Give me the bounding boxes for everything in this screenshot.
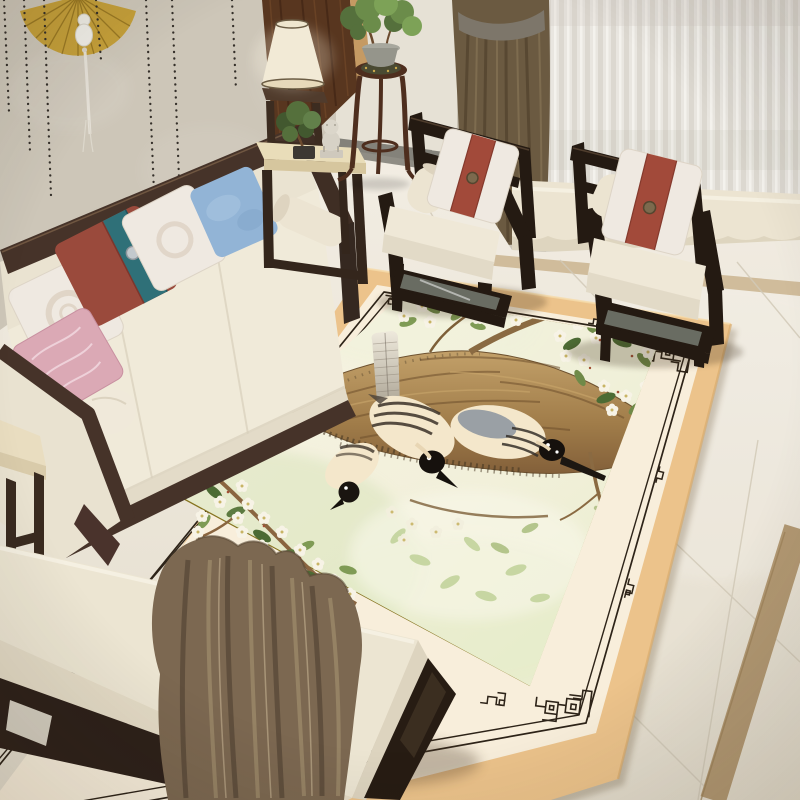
living-room-photo: [0, 0, 800, 800]
vignette: [0, 0, 800, 800]
scene-canvas: [0, 0, 800, 800]
